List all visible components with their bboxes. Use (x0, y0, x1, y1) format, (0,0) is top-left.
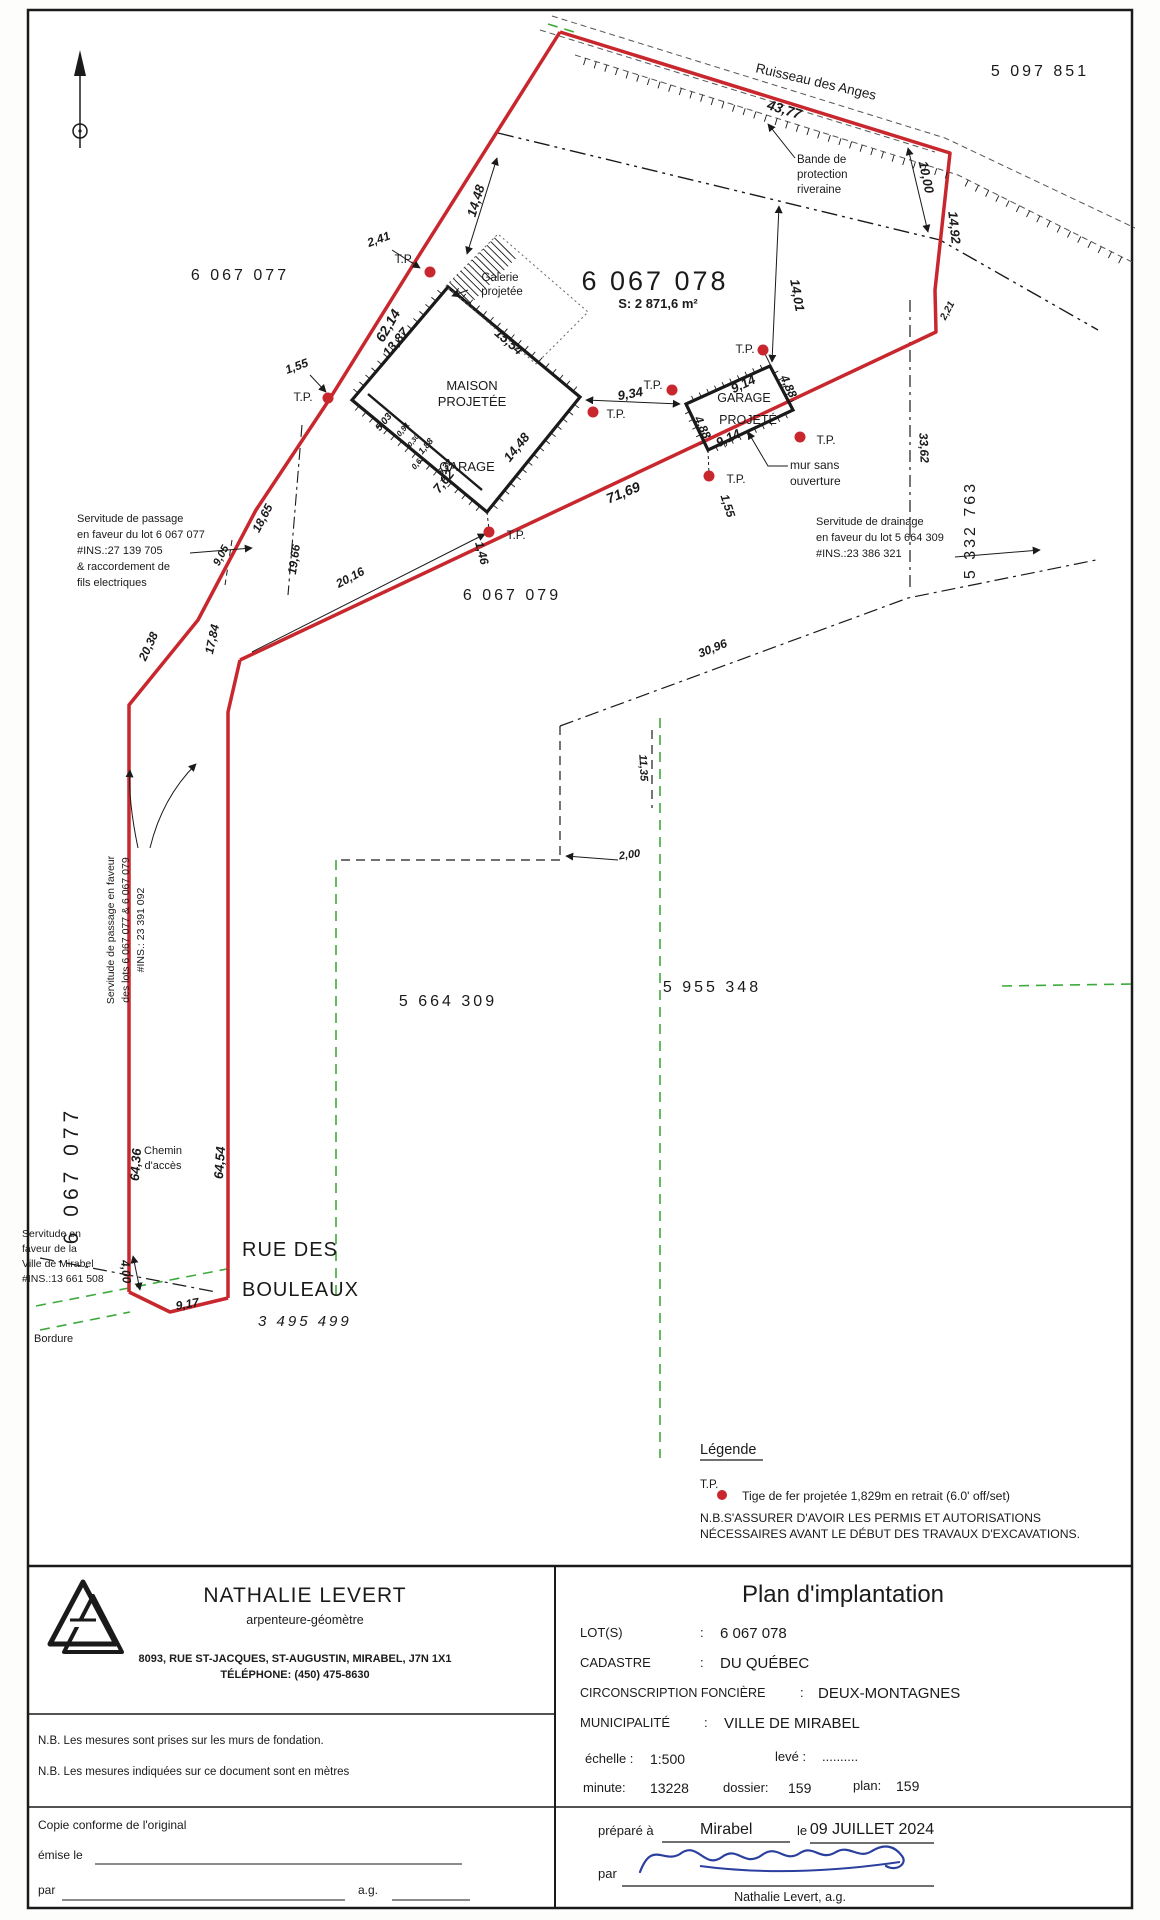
gallery-label: Galerie (481, 272, 518, 284)
house-label: PROJETÉE (438, 394, 507, 409)
lot-number-main: 6 067 078 (581, 266, 728, 296)
lot-area: S: 2 871,6 m² (618, 296, 698, 311)
svg-text::: : (700, 1655, 704, 1670)
svg-text:6 067 078: 6 067 078 (720, 1625, 787, 1642)
note-foundation: N.B. Les mesures sont prises sur les mur… (38, 1735, 324, 1747)
riparian-label: riveraine (797, 184, 841, 196)
tp-marker (717, 1490, 727, 1500)
svg-text:Ville de Mirabel: Ville de Mirabel (22, 1258, 94, 1270)
garage2-label: GARAGE (717, 391, 771, 405)
par-left-label: par (38, 1883, 55, 1897)
svg-text:64,54: 64,54 (211, 1145, 228, 1179)
svg-text:11,35: 11,35 (636, 754, 649, 782)
svg-text:T.P.: T.P. (293, 390, 312, 404)
gallery-label: projetée (481, 286, 523, 298)
svg-text:T.P.: T.P. (506, 528, 525, 542)
svg-text:33,62: 33,62 (916, 432, 932, 463)
curb-label: Bordure (34, 1333, 73, 1345)
svg-text:Servitude de passage en faveur: Servitude de passage en faveur (105, 855, 117, 1004)
plan-drawing: 5 097 851 6 067 077 6 067 078 S: 2 871,6… (0, 0, 1160, 1920)
lot-number: 5 664 309 (399, 993, 497, 1010)
surveyor-name: NATHALIE LEVERT (203, 1584, 406, 1607)
svg-text:VILLE DE MIRABEL: VILLE DE MIRABEL (724, 1715, 860, 1732)
svg-text::: : (700, 1625, 704, 1640)
svg-text:par: par (598, 1866, 617, 1881)
svg-text:#INS.:27 139 705: #INS.:27 139 705 (77, 545, 163, 557)
svg-text:T.P.: T.P. (726, 472, 745, 486)
svg-text:159: 159 (896, 1778, 920, 1794)
tp-marker (667, 385, 678, 396)
lot-number: 5 332 763 (962, 481, 979, 579)
svg-text:#INS.:13 661 508: #INS.:13 661 508 (22, 1273, 104, 1285)
legend-tp-desc: Tige de fer projetée 1,829m en retrait (… (742, 1489, 1010, 1503)
street-name: BOULEAUX (242, 1279, 359, 1301)
svg-text:fils electriques: fils electriques (77, 577, 147, 589)
wall-label: mur sans (790, 458, 839, 472)
tp-marker (425, 267, 436, 278)
street-name: RUE DES (242, 1239, 338, 1261)
svg-text:Mirabel: Mirabel (700, 1821, 752, 1838)
access-road-label: d'accès (145, 1160, 182, 1172)
svg-text::: : (800, 1685, 804, 1700)
svg-text:T.P.: T.P. (735, 342, 754, 356)
svg-text:159: 159 (788, 1780, 812, 1796)
svg-text:Servitude en: Servitude en (22, 1228, 81, 1240)
svg-text:CIRCONSCRIPTION FONCIÈRE: CIRCONSCRIPTION FONCIÈRE (580, 1685, 765, 1700)
svg-text:MUNICIPALITÉ: MUNICIPALITÉ (580, 1715, 670, 1730)
svg-text:CADASTRE: CADASTRE (580, 1655, 651, 1670)
lot-number: 5 097 851 (991, 63, 1089, 80)
svg-text:Nathalie Levert, a.g.: Nathalie Levert, a.g. (734, 1890, 846, 1904)
lot-number: 6 067 077 (60, 1106, 83, 1244)
ag-label: a.g. (358, 1883, 378, 1897)
svg-text:faveur de la: faveur de la (22, 1243, 77, 1255)
surveyor-address: 8093, RUE ST-JACQUES, ST-AUGUSTIN, MIRAB… (139, 1653, 452, 1665)
svg-text:..........: .......... (822, 1749, 858, 1764)
wall-label: ouverture (790, 474, 841, 488)
svg-text:& raccordement de: & raccordement de (77, 561, 170, 573)
riparian-label: protection (797, 169, 848, 181)
doc-title: Plan d'implantation (742, 1581, 944, 1608)
svg-text:préparé à: préparé à (598, 1823, 654, 1838)
tp-marker (484, 527, 495, 538)
lot-number: 6 067 077 (191, 267, 289, 284)
svg-text:T.P.: T.P. (606, 407, 625, 421)
svg-text:plan:: plan: (853, 1778, 881, 1793)
svg-text:des lots 6 067 077 & 6 067 079: des lots 6 067 077 & 6 067 079 (120, 857, 132, 1003)
svg-text:4,00: 4,00 (118, 1258, 134, 1284)
svg-text:minute:: minute: (583, 1780, 626, 1795)
surveyor-title: arpenteure-géomètre (246, 1613, 363, 1627)
svg-text:64,36: 64,36 (127, 1147, 144, 1181)
tp-marker (795, 432, 806, 443)
legend-nb: N.B.S'ASSURER D'AVOIR LES PERMIS ET AUTO… (700, 1511, 1041, 1525)
lot-number: 6 067 079 (463, 587, 561, 604)
svg-text:T.P.: T.P. (816, 433, 835, 447)
svg-text:DEUX-MONTAGNES: DEUX-MONTAGNES (818, 1685, 960, 1702)
access-road-label: Chemin (144, 1145, 182, 1157)
svg-text:09 JUILLET 2024: 09 JUILLET 2024 (810, 1821, 934, 1838)
lot-number: 3 495 499 (258, 1313, 352, 1330)
legend-title: Légende (700, 1442, 756, 1458)
svg-text:13228: 13228 (650, 1780, 689, 1796)
svg-text::: : (704, 1715, 708, 1730)
svg-text:en faveur du lot 5 664 309: en faveur du lot 5 664 309 (816, 532, 944, 544)
issued-label: émise le (38, 1848, 83, 1862)
svg-text:#INS.: 23 391 092: #INS.: 23 391 092 (135, 888, 147, 973)
svg-text:échelle :: échelle : (585, 1751, 633, 1766)
svg-text:Servitude de drainage: Servitude de drainage (816, 516, 924, 528)
svg-text:#INS.:23 386 321: #INS.:23 386 321 (816, 548, 902, 560)
tp-marker (704, 471, 715, 482)
riparian-label: Bande de (797, 154, 846, 166)
svg-text:le: le (797, 1823, 807, 1838)
tp-marker (323, 393, 334, 404)
svg-text:LOT(S): LOT(S) (580, 1625, 623, 1640)
copy-note: Copie conforme de l'original (38, 1818, 186, 1832)
svg-text:levé :: levé : (775, 1749, 806, 1764)
svg-text:Servitude de passage: Servitude de passage (77, 513, 183, 525)
survey-plan-sheet: 5 097 851 6 067 077 6 067 078 S: 2 871,6… (0, 0, 1160, 1920)
svg-text:dossier:: dossier: (723, 1780, 769, 1795)
house-label: MAISON (446, 378, 497, 393)
svg-text:T.P.: T.P. (643, 378, 662, 392)
svg-text:T.P.: T.P. (394, 252, 413, 266)
svg-text:1:500: 1:500 (650, 1751, 685, 1767)
garage2-label: PROJETÉ (719, 412, 777, 427)
svg-text:en faveur du lot 6 067 077: en faveur du lot 6 067 077 (77, 529, 205, 541)
surveyor-phone: TÉLÉPHONE: (450) 475-8630 (220, 1668, 369, 1681)
legend-tp: T.P. (700, 1479, 718, 1491)
svg-text:DU QUÉBEC: DU QUÉBEC (720, 1655, 809, 1672)
lot-number: 5 955 348 (663, 979, 761, 996)
note-metres: N.B. Les mesures indiquées sur ce docume… (38, 1766, 350, 1778)
legend-nb: NÉCESSAIRES AVANT LE DÉBUT DES TRAVAUX D… (700, 1526, 1080, 1541)
tp-marker (758, 345, 769, 356)
tp-marker (588, 407, 599, 418)
page-border (28, 10, 1132, 1908)
